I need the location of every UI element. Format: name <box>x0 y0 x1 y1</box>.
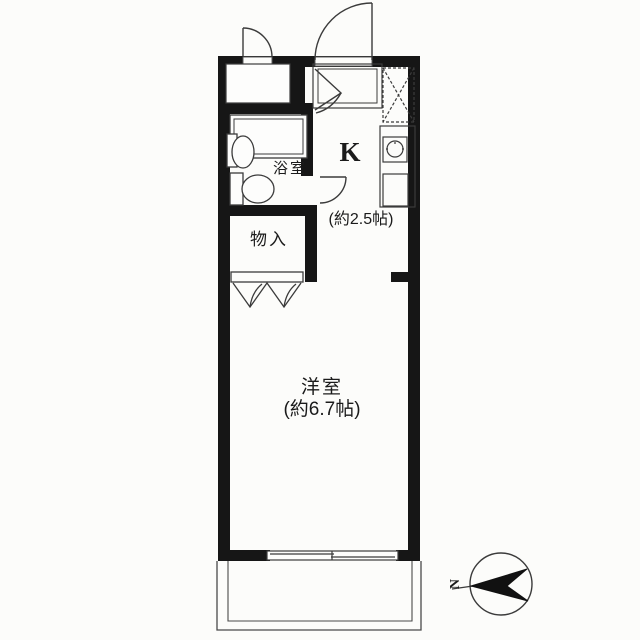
wall-kitchen-room-stub <box>391 272 408 282</box>
kitchen-sink <box>383 137 407 162</box>
bathroom-label: 浴室 <box>273 161 307 176</box>
balcony-inner-rail <box>228 561 412 621</box>
bathroom-door <box>320 177 346 203</box>
sliding-window <box>267 551 398 560</box>
balcony <box>217 561 421 630</box>
wall-bottom-left <box>218 550 270 561</box>
wall-alcove-genkan-divider <box>290 56 305 103</box>
wall-below-bathroom <box>218 205 317 216</box>
entrance-door-threshold <box>315 57 372 66</box>
balcony-outer-rail <box>217 561 421 630</box>
toilet <box>230 173 274 205</box>
wall-bottom-right <box>396 550 420 561</box>
wall-storage-right <box>305 205 317 282</box>
alcove-door <box>243 28 272 57</box>
entrance-door <box>315 3 372 60</box>
genkan-step <box>313 64 382 108</box>
stove-space <box>383 174 408 206</box>
western-room-label: 洋室 <box>301 378 343 397</box>
compass-north-arrow <box>471 569 528 601</box>
washer-space <box>226 64 290 103</box>
floor-plan: 浴室 K (約2.5帖) 物入 洋室 (約6.7帖) N <box>0 0 640 640</box>
compass-north-label: N <box>449 579 463 589</box>
storage-label: 物入 <box>250 231 288 248</box>
utility-alcove <box>226 64 290 103</box>
floor-plan-linework <box>0 0 640 640</box>
storage-folding-door <box>231 272 303 307</box>
bathroom-door-threshold <box>303 177 312 204</box>
compass <box>452 553 532 615</box>
wall-below-alcove <box>218 103 313 114</box>
western-room-size-label: (約6.7帖) <box>283 400 360 419</box>
wall-left <box>218 56 230 561</box>
kitchen-size-label: (約2.5帖) <box>329 212 394 228</box>
genkan-door-swing <box>315 69 341 113</box>
kitchen-label: K <box>339 139 360 166</box>
washbasin <box>227 134 254 168</box>
wall-right <box>408 56 420 561</box>
